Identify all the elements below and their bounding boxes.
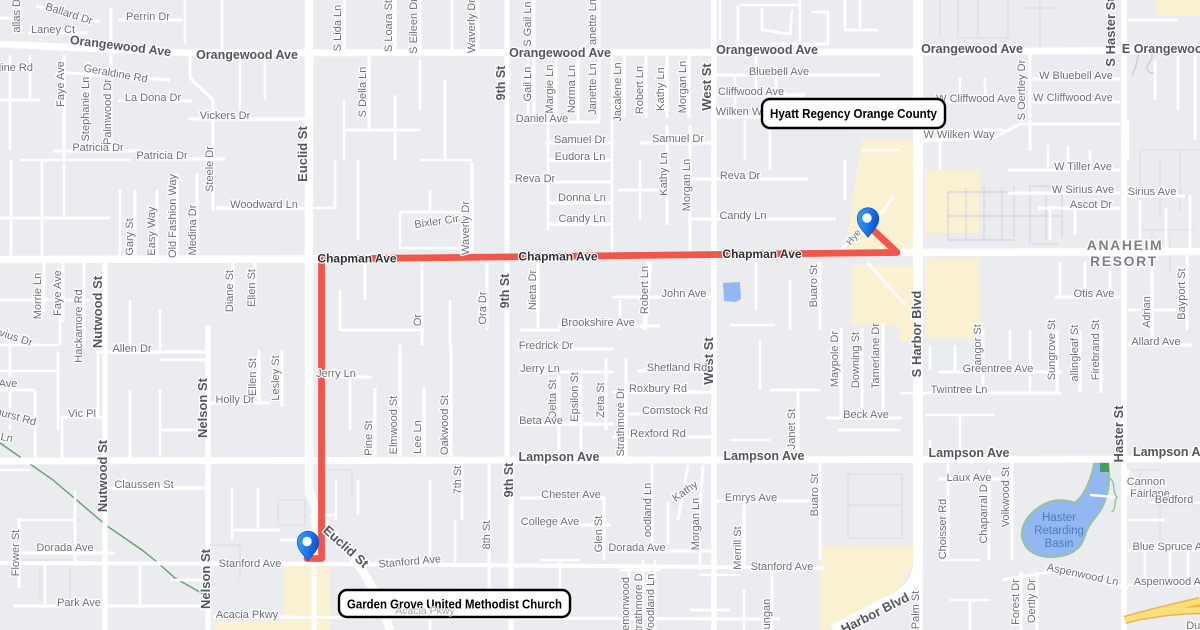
svg-text:Sirius Ave: Sirius Ave bbox=[1128, 186, 1177, 198]
svg-text:West St: West St bbox=[701, 337, 716, 385]
svg-text:Stanford Ave: Stanford Ave bbox=[751, 561, 814, 573]
svg-text:Volkwood St: Volkwood St bbox=[1000, 467, 1012, 528]
svg-text:Samuel Dr: Samuel Dr bbox=[652, 133, 704, 145]
svg-text:Candy Ln: Candy Ln bbox=[719, 210, 766, 222]
svg-text:W Wilken Way: W Wilken Way bbox=[923, 129, 995, 141]
svg-text:Waverly Dr: Waverly Dr bbox=[466, 0, 478, 53]
svg-text:E Orangewood: E Orangewood bbox=[1122, 42, 1200, 56]
svg-text:Steele Dr: Steele Dr bbox=[204, 146, 216, 192]
svg-text:Eudora Ln: Eudora Ln bbox=[555, 151, 606, 163]
svg-text:S Gail Ln: S Gail Ln bbox=[522, 1, 534, 46]
svg-text:Blue Spruce Av: Blue Spruce Av bbox=[1132, 541, 1200, 553]
svg-text:oodland Ln: oodland Ln bbox=[642, 483, 654, 537]
svg-text:Nutwood St: Nutwood St bbox=[90, 275, 105, 348]
svg-text:Orangewood Ave: Orangewood Ave bbox=[196, 48, 298, 62]
svg-text:Kathy Ln: Kathy Ln bbox=[658, 152, 670, 195]
svg-text:Medina Dr: Medina Dr bbox=[187, 204, 199, 255]
svg-text:Easy Way: Easy Way bbox=[146, 206, 158, 256]
svg-text:Lampson Ave: Lampson Ave bbox=[928, 446, 1009, 460]
svg-text:Woodward Ln: Woodward Ln bbox=[230, 199, 298, 211]
svg-text:Vickers Dr: Vickers Dr bbox=[200, 110, 251, 122]
svg-text:Morrie Ln: Morrie Ln bbox=[32, 273, 44, 319]
svg-text:Roxbury Rd: Roxbury Rd bbox=[629, 383, 687, 395]
svg-text:Robert Ln: Robert Ln bbox=[634, 66, 646, 114]
svg-text:anette Ln: anette Ln bbox=[587, 0, 599, 45]
svg-text:Patricia Dr: Patricia Dr bbox=[136, 150, 188, 162]
svg-text:S Loara St: S Loara St bbox=[383, 0, 395, 52]
svg-text:Strathmore D: Strathmore D bbox=[633, 573, 645, 630]
svg-text:Aspenwood Av: Aspenwood Av bbox=[1134, 576, 1200, 588]
svg-text:W Tiller Ave: W Tiller Ave bbox=[1054, 161, 1112, 173]
svg-text:John Ave: John Ave bbox=[661, 288, 706, 300]
svg-text:Old Fashion Way: Old Fashion Way bbox=[167, 174, 179, 258]
svg-text:Comstock Rd: Comstock Rd bbox=[642, 405, 708, 417]
svg-text:Pine St: Pine St bbox=[363, 420, 375, 455]
svg-text:College Ave: College Ave bbox=[521, 516, 580, 528]
svg-text:Chapman Ave: Chapman Ave bbox=[518, 250, 597, 264]
svg-text:Morgan Ln: Morgan Ln bbox=[681, 159, 693, 212]
svg-text:Beck Ave: Beck Ave bbox=[843, 409, 889, 421]
svg-text:Firebrand St: Firebrand St bbox=[1090, 320, 1102, 381]
svg-text:Orangewood Ave: Orangewood Ave bbox=[509, 46, 611, 60]
svg-text:S Oertley Dr: S Oertley Dr bbox=[1016, 59, 1028, 120]
svg-text:Faye Ave: Faye Ave bbox=[52, 270, 64, 316]
svg-text:Or: Or bbox=[412, 314, 424, 327]
svg-text:Stanford Ave: Stanford Ave bbox=[219, 558, 282, 570]
svg-text:Stephanie Ln: Stephanie Ln bbox=[80, 77, 92, 142]
svg-text:Reva Dr: Reva Dr bbox=[515, 173, 556, 185]
svg-text:Bluebell Ave: Bluebell Ave bbox=[749, 66, 809, 78]
svg-text:Forest Dr: Forest Dr bbox=[1010, 579, 1022, 625]
svg-text:Claussen St: Claussen St bbox=[114, 479, 173, 491]
svg-text:9th St: 9th St bbox=[494, 65, 508, 101]
svg-text:Acacia Pkwy: Acacia Pkwy bbox=[216, 609, 279, 621]
svg-text:Chester Ave: Chester Ave bbox=[541, 489, 601, 501]
svg-text:Flower St: Flower St bbox=[10, 530, 22, 576]
svg-text:Acacia Pkwy: Acacia Pkwy bbox=[395, 605, 455, 617]
svg-text:Ave: Ave bbox=[0, 378, 17, 390]
svg-text:Daniel Ave: Daniel Ave bbox=[516, 113, 568, 125]
svg-text:W Sirius Ave: W Sirius Ave bbox=[1052, 184, 1114, 196]
svg-text:Epsilon St: Epsilon St bbox=[569, 372, 581, 422]
svg-text:Ellen St: Ellen St bbox=[247, 358, 259, 396]
svg-text:Donna Ln: Donna Ln bbox=[558, 192, 606, 204]
svg-text:Cliffwood Ave: Cliffwood Ave bbox=[718, 86, 784, 98]
svg-text:Palmwood Dr: Palmwood Dr bbox=[102, 79, 114, 145]
svg-text:Greentree Ave: Greentree Ave bbox=[963, 363, 1034, 375]
svg-text:La Dona Dr: La Dona Dr bbox=[125, 92, 182, 104]
svg-text:Downing St: Downing St bbox=[850, 332, 862, 388]
svg-text:Candy Ln: Candy Ln bbox=[558, 213, 605, 225]
svg-text:7th St: 7th St bbox=[452, 466, 464, 495]
svg-text:Merrill St: Merrill St bbox=[732, 526, 744, 569]
svg-text:S Della Ln: S Della Ln bbox=[357, 67, 369, 118]
svg-text:Elmwood St: Elmwood St bbox=[388, 396, 400, 455]
svg-text:Sungrove St: Sungrove St bbox=[1046, 320, 1058, 381]
svg-text:Chapman Ave: Chapman Ave bbox=[722, 247, 801, 261]
svg-text:Gail Ln: Gail Ln bbox=[522, 67, 534, 102]
svg-text:Choisser Rd: Choisser Rd bbox=[937, 499, 949, 560]
svg-text:Ascot Dr: Ascot Dr bbox=[1070, 199, 1113, 211]
svg-text:S Harbor Blvd: S Harbor Blvd bbox=[909, 291, 924, 378]
svg-text:Adrian: Adrian bbox=[1141, 296, 1153, 328]
svg-text:Maypole Dr: Maypole Dr bbox=[829, 331, 841, 388]
svg-text:Laney Ct: Laney Ct bbox=[31, 24, 75, 36]
svg-text:Shetland Rd: Shetland Rd bbox=[647, 362, 708, 374]
svg-text:Morgan Ln: Morgan Ln bbox=[677, 61, 689, 114]
svg-text:Kathy Ln: Kathy Ln bbox=[655, 67, 667, 110]
svg-text:Lampson Av: Lampson Av bbox=[1133, 445, 1200, 459]
svg-text:Delta St: Delta St bbox=[547, 379, 559, 418]
svg-text:Oertly Dr: Oertly Dr bbox=[1026, 579, 1038, 623]
svg-text:Nelson St: Nelson St bbox=[198, 548, 213, 609]
svg-text:Chapman Ave: Chapman Ave bbox=[317, 252, 396, 266]
svg-text:Robert Ln: Robert Ln bbox=[639, 266, 651, 314]
svg-text:Jacalene Ln: Jacalene Ln bbox=[612, 62, 624, 121]
svg-text:W Cliffwood Ave: W Cliffwood Ave bbox=[1033, 92, 1113, 104]
svg-text:Rexford Rd: Rexford Rd bbox=[630, 428, 686, 440]
svg-text:Lesley St: Lesley St bbox=[270, 355, 282, 400]
svg-text:Waverly Dr: Waverly Dr bbox=[460, 201, 472, 255]
svg-text:Woodland Ln: Woodland Ln bbox=[645, 574, 657, 630]
svg-text:Janette Ln: Janette Ln bbox=[587, 63, 599, 114]
svg-text:RESORT: RESORT bbox=[1090, 253, 1158, 269]
svg-text:Haster St: Haster St bbox=[1111, 405, 1126, 463]
svg-text:Norma Ln: Norma Ln bbox=[566, 65, 578, 113]
svg-text:Samuel Dr: Samuel Dr bbox=[554, 134, 606, 146]
svg-text:Hyatt Regency Orange County: Hyatt Regency Orange County bbox=[770, 106, 938, 121]
svg-text:Nutwood St: Nutwood St bbox=[95, 439, 110, 512]
svg-text:Janet St: Janet St bbox=[786, 409, 798, 449]
svg-text:Ellen St: Ellen St bbox=[246, 269, 258, 307]
svg-text:ANAHEIM: ANAHEIM bbox=[1087, 237, 1164, 253]
svg-text:Orangewood Ave: Orangewood Ave bbox=[716, 43, 818, 57]
svg-text:Ln: Ln bbox=[0, 431, 14, 445]
svg-text:9th St: 9th St bbox=[502, 462, 516, 498]
svg-text:Gary St: Gary St bbox=[124, 218, 136, 255]
svg-text:Twintree Ln: Twintree Ln bbox=[931, 384, 988, 396]
svg-text:Wilken W: Wilken W bbox=[716, 106, 763, 118]
svg-text:Brookshire Ave: Brookshire Ave bbox=[561, 317, 635, 329]
svg-text:Fredrick Dr: Fredrick Dr bbox=[519, 340, 574, 352]
svg-text:dine Rd: dine Rd bbox=[0, 62, 33, 74]
svg-text:Buaro St: Buaro St bbox=[809, 474, 821, 517]
svg-text:Duv: Duv bbox=[1186, 620, 1200, 630]
svg-text:Emrys Ave: Emrys Ave bbox=[725, 492, 777, 504]
svg-text:Nelson St: Nelson St bbox=[195, 377, 210, 438]
svg-text:Reva Dr: Reva Dr bbox=[720, 170, 761, 182]
svg-text:Glen St: Glen St bbox=[593, 516, 605, 553]
svg-text:Allard Ave: Allard Ave bbox=[1131, 336, 1180, 348]
svg-text:Lemonwood: Lemonwood bbox=[620, 577, 632, 630]
svg-text:Lampson Ave: Lampson Ave bbox=[723, 449, 804, 463]
svg-text:Laux Ave: Laux Ave bbox=[946, 472, 991, 484]
svg-text:Bayport St: Bayport St bbox=[1176, 268, 1188, 319]
svg-text:Palm St: Palm St bbox=[910, 591, 922, 630]
svg-text:W Cliffwood Ave: W Cliffwood Ave bbox=[936, 93, 1016, 105]
svg-text:Chaparral D: Chaparral D bbox=[978, 484, 990, 543]
svg-text:allingleaf St: allingleaf St bbox=[1069, 325, 1081, 382]
svg-text:West St: West St bbox=[699, 63, 714, 111]
svg-text:Ora Dr: Ora Dr bbox=[477, 291, 489, 324]
svg-text:Allen Dr: Allen Dr bbox=[112, 343, 151, 355]
svg-text:Orangewood Ave: Orangewood Ave bbox=[921, 42, 1023, 56]
svg-text:8th St: 8th St bbox=[481, 521, 493, 550]
svg-text:Jerry Ln: Jerry Ln bbox=[316, 368, 356, 380]
svg-text:Perrin Dr: Perrin Dr bbox=[126, 11, 170, 23]
svg-text:Hackamore Rd: Hackamore Rd bbox=[73, 289, 85, 362]
svg-text:9th St: 9th St bbox=[498, 273, 512, 309]
svg-text:Bedford: Bedford bbox=[1155, 494, 1194, 506]
svg-text:Euclid St: Euclid St bbox=[295, 126, 310, 182]
svg-text:Buaro St: Buaro St bbox=[808, 265, 820, 308]
svg-text:Strathmore Dr: Strathmore Dr bbox=[615, 387, 627, 456]
svg-text:S Haster St: S Haster St bbox=[1103, 0, 1118, 67]
svg-text:Lee Ln: Lee Ln bbox=[412, 420, 424, 454]
svg-text:allas Dr: allas Dr bbox=[11, 0, 23, 33]
svg-text:Faye Ave: Faye Ave bbox=[55, 61, 67, 107]
svg-text:Oakwood St: Oakwood St bbox=[439, 395, 451, 455]
svg-text:Lampson Ave: Lampson Ave bbox=[518, 450, 599, 464]
svg-text:Margie Ln: Margie Ln bbox=[544, 65, 556, 114]
svg-text:S Lida Ln: S Lida Ln bbox=[332, 5, 344, 51]
svg-text:Nieta Dr: Nieta Dr bbox=[527, 269, 539, 310]
svg-text:W Bluebell Ave: W Bluebell Ave bbox=[1039, 70, 1113, 82]
svg-text:Morgan Ln: Morgan Ln bbox=[690, 498, 702, 551]
svg-text:Park Ave: Park Ave bbox=[57, 597, 101, 609]
svg-text:Vic Pl: Vic Pl bbox=[68, 408, 96, 420]
svg-text:Diane St: Diane St bbox=[224, 270, 236, 312]
svg-text:Tamerlane Dr: Tamerlane Dr bbox=[870, 323, 882, 389]
svg-text:Cannon: Cannon bbox=[1127, 476, 1166, 488]
svg-text:Patricia Dr: Patricia Dr bbox=[72, 142, 124, 154]
svg-text:Beta Ave: Beta Ave bbox=[519, 415, 563, 427]
svg-text:Zeta St: Zeta St bbox=[595, 382, 607, 417]
svg-text:Dungan: Dungan bbox=[761, 599, 773, 630]
svg-text:Otis Ave: Otis Ave bbox=[1074, 288, 1115, 300]
svg-text:angor St: angor St bbox=[972, 324, 984, 366]
svg-text:Dorada Ave: Dorada Ave bbox=[36, 542, 93, 554]
svg-text:Jerry Ln: Jerry Ln bbox=[520, 363, 560, 375]
svg-text:Dorada Ave: Dorada Ave bbox=[608, 542, 665, 554]
svg-text:S Eileen Dr: S Eileen Dr bbox=[408, 0, 420, 54]
